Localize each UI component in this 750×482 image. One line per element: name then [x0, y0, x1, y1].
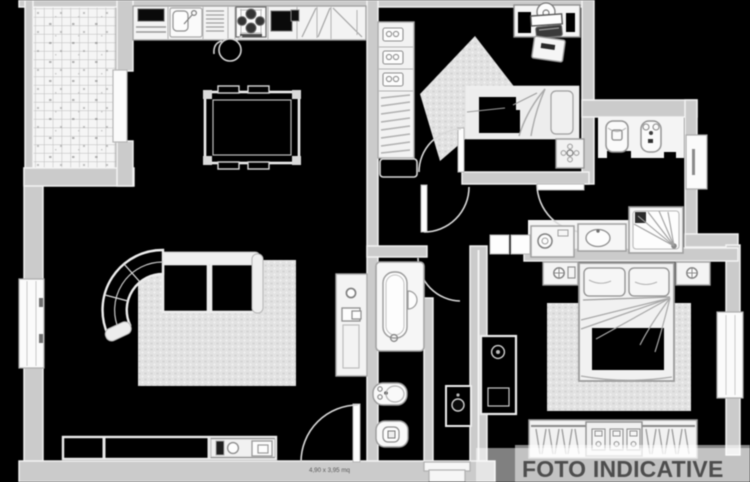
svg-text:4,90 x 3,95 mq: 4,90 x 3,95 mq [309, 467, 350, 474]
svg-text:FOTO INDICATIVE: FOTO INDICATIVE [522, 456, 724, 482]
